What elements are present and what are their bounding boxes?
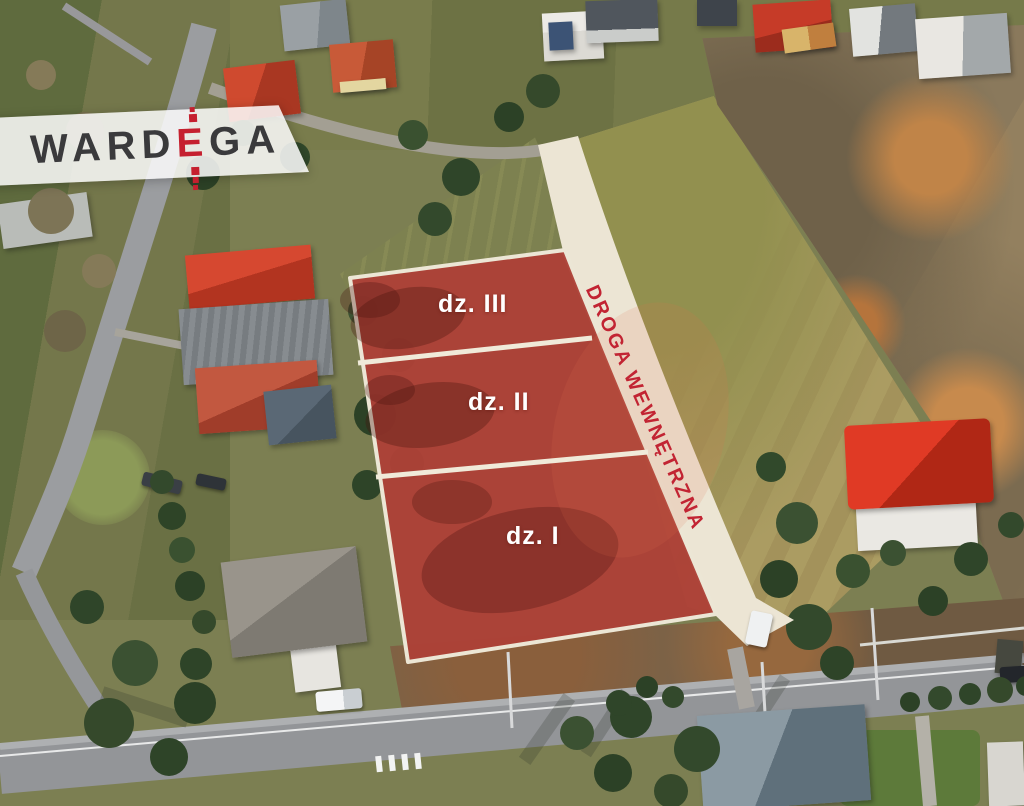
wardega-logo: WARDEGA xyxy=(29,117,282,173)
plot-label-dz-2: dz. II xyxy=(468,388,530,417)
logo-dots-bottom xyxy=(191,165,200,192)
logo-text-part2: GA xyxy=(208,117,282,164)
logo-text-part1: WARD xyxy=(29,122,177,172)
aerial-photo: dz. III dz. II dz. I DROGA WEWNĘTRZNA WA… xyxy=(0,0,1024,806)
plot-label-dz-1: dz. I xyxy=(506,522,560,551)
plot-label-dz-3: dz. III xyxy=(438,290,508,319)
logo-dots-top xyxy=(188,105,197,124)
logo-accent-letter: E xyxy=(175,120,210,166)
